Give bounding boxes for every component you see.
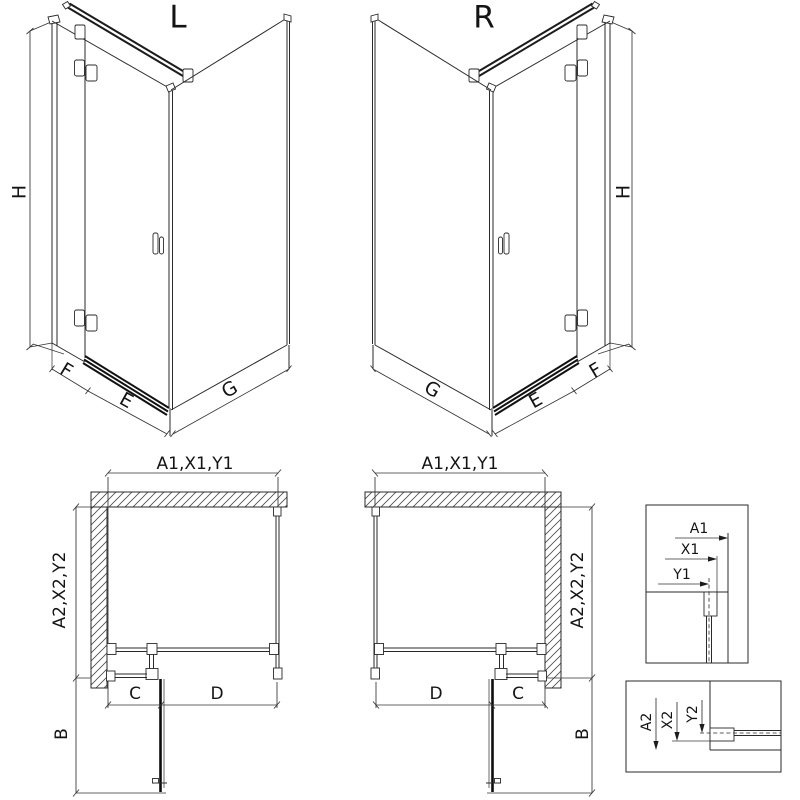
plan-width-label-right: A1,X1,Y1 [422, 454, 499, 474]
plan-swing-label-right: B [573, 728, 593, 740]
fixed-dim-label-left: F [56, 358, 77, 382]
side-dim-label-right: G [420, 376, 444, 402]
detail-overall-label-side: A2 [639, 713, 655, 731]
plan-swing-label-left: B [52, 728, 72, 740]
plan-door-label-right: D [429, 684, 442, 704]
door-dim-label-right: E [525, 388, 546, 413]
plan-width-label-left: A1,X1,Y1 [157, 454, 234, 474]
variant-label-left: L [169, 0, 187, 36]
door-dim-label-left: E [116, 388, 137, 413]
variant-label-right: R [473, 0, 495, 36]
detail-profile-label-front: X1 [681, 542, 700, 558]
detail-view-side-profile: A2 X2 Y2 [626, 681, 781, 772]
side-dim-label-left: G [218, 376, 242, 402]
detail-overall-label-front: A1 [690, 521, 708, 537]
plan-door-label-left: D [210, 684, 223, 704]
wall-side-right-plan [545, 507, 561, 688]
wall-top-left-plan [91, 492, 287, 507]
plan-fixed-label-right: C [512, 684, 524, 704]
iso-view-left: L H F E G [9, 0, 292, 437]
fixed-dim-label-right: F [585, 358, 606, 382]
height-dim-label-left: H [9, 185, 31, 199]
detail-view-front-profile: A1 X1 Y1 [646, 505, 748, 663]
detail-profile-label-side: X2 [660, 711, 676, 730]
technical-drawing-canvas: L H F E G R H F E G A1,X1,Y1 A2,X2,Y2 B … [0, 0, 800, 800]
plan-view-right: A1,X1,Y1 A2,X2,Y2 B C D [365, 454, 595, 797]
shower-enclosure-diagram: L H F E G R H F E G A1,X1,Y1 A2,X2,Y2 B … [0, 0, 800, 800]
wall-top-right-plan [365, 492, 561, 507]
plan-fixed-label-left: C [129, 684, 141, 704]
detail-glass-label-side: Y2 [685, 705, 701, 723]
plan-depth-label-left: A2,X2,Y2 [50, 552, 70, 629]
iso-view-right: R H F E G [371, 0, 636, 437]
detail-glass-label-front: Y1 [672, 567, 690, 583]
height-dim-label-right: H [613, 185, 635, 199]
plan-view-left: A1,X1,Y1 A2,X2,Y2 B C D [50, 454, 287, 797]
plan-depth-label-right: A2,X2,Y2 [568, 552, 588, 629]
wall-side-left-plan [91, 507, 107, 688]
